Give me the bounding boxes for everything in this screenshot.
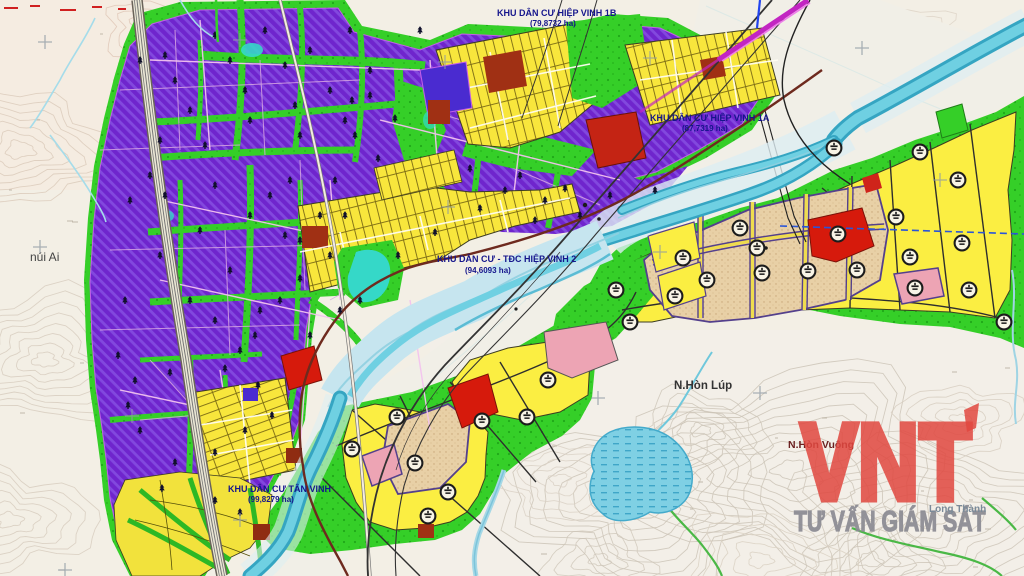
svg-text:núi Ai: núi Ai — [30, 250, 59, 264]
svg-text:KHU DÂN CƯ TÂN VINH: KHU DÂN CƯ TÂN VINH — [228, 483, 331, 494]
svg-text:KHU DÂN CƯ HIỆP VINH 1B: KHU DÂN CƯ HIỆP VINH 1B — [497, 7, 617, 18]
svg-text:Long Thành: Long Thành — [929, 504, 986, 515]
svg-text:KHU DÂN CƯ - TĐC HIỆP VINH 2: KHU DÂN CƯ - TĐC HIỆP VINH 2 — [437, 253, 576, 264]
svg-text:(94,6093 ha): (94,6093 ha) — [465, 266, 511, 275]
svg-text:N.Hòn Lúp: N.Hòn Lúp — [674, 380, 732, 392]
svg-text:(79,8732 ha): (79,8732 ha) — [530, 19, 576, 28]
svg-text:(99,8279 ha): (99,8279 ha) — [248, 495, 294, 504]
svg-text:KHU DÂN CƯ HIỆP VINH 1A: KHU DÂN CƯ HIỆP VINH 1A — [650, 112, 770, 123]
svg-text:(87,7319 ha): (87,7319 ha) — [682, 124, 728, 133]
